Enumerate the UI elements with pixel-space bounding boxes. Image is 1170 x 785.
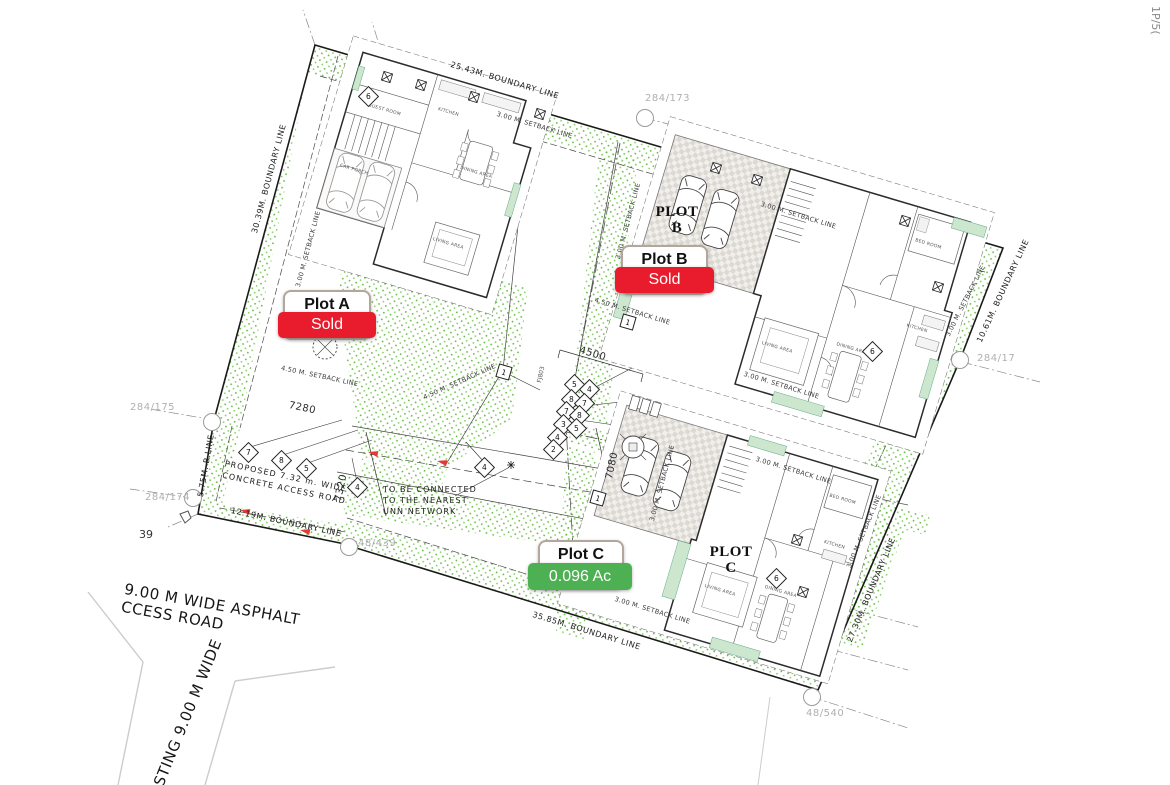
plot-b-plan-label: PLOT B [650,204,704,236]
survey-ref-48-439: 48/439 [358,538,396,549]
unn-note: TO BE CONNECTED TO THE NEAREST UNN NETWO… [383,484,477,517]
plot-b-plan-line2: B [650,220,704,236]
sheet-ref: 1P/5( [1149,6,1162,35]
site-plan-canvas: GUEST ROOM KITCHEN DINING AREA LIVING AR… [0,0,1170,785]
unn-note-line2: TO THE NEAREST [383,495,477,506]
plot-c-status-badge[interactable]: 0.096 Ac [528,563,632,590]
road-number-39: 39 [139,528,153,541]
connection-star [507,461,515,469]
survey-ref-284-17: 284/17 [977,353,1015,364]
plot-b-plan-line1: PLOT [650,204,704,220]
plot-c-plan-line2: C [706,560,756,576]
survey-ref-284-174: 284/174 [145,492,190,503]
plot-c-plan-label: PLOT C [706,544,756,576]
plot-c-plan-line1: PLOT [706,544,756,560]
survey-ref-284-173: 284/173 [645,93,690,104]
survey-ref-284-175: 284/175 [130,402,175,413]
plot-b-status-badge[interactable]: Sold [615,267,714,293]
survey-ref-48-540: 48/540 [806,708,844,719]
north-marker [180,511,191,523]
unn-note-line3: UNN NETWORK [383,506,477,517]
unn-note-line1: TO BE CONNECTED [383,484,477,495]
plot-a-status-badge[interactable]: Sold [278,312,376,338]
